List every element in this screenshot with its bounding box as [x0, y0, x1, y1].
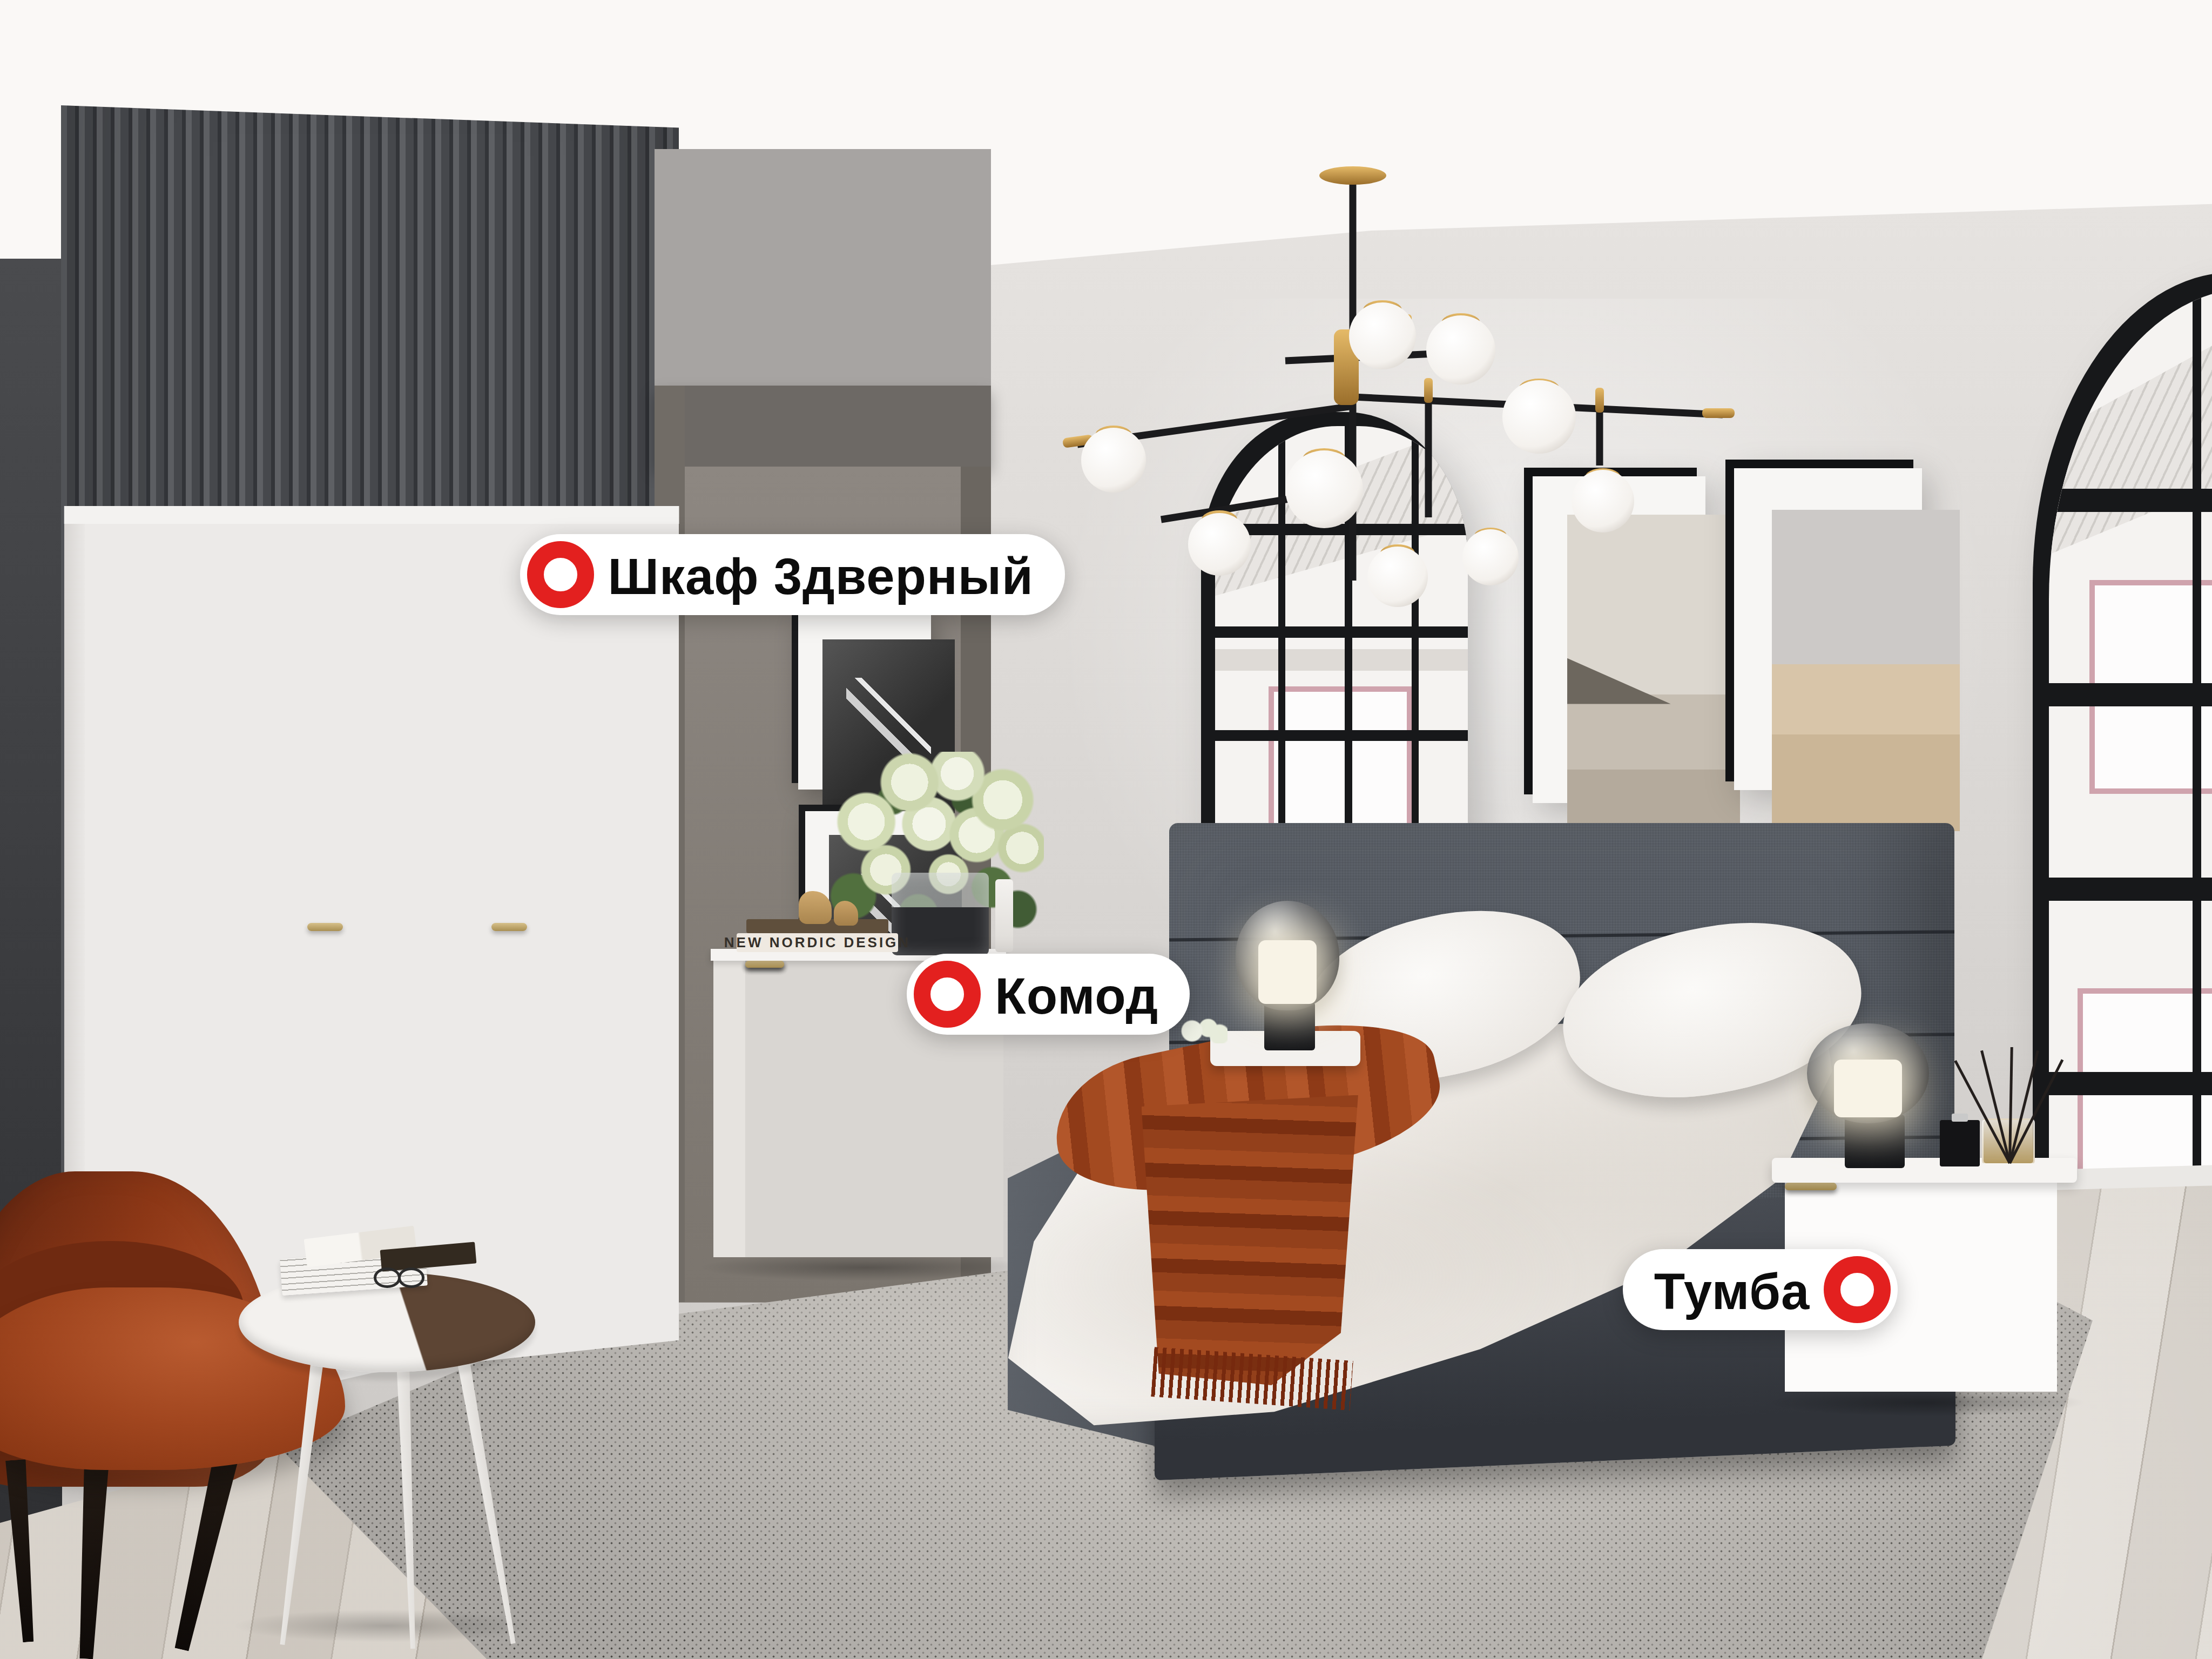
niche-pelmet	[655, 386, 991, 466]
hotspot-marker-icon	[914, 961, 981, 1028]
frame-mat	[1734, 468, 1922, 790]
drawer-handle	[745, 961, 784, 968]
nightstand-lamp-glass-dome	[1807, 1023, 1928, 1123]
chest-side-panel	[713, 961, 745, 1257]
hotspot-marker-icon	[527, 541, 594, 608]
wardrobe-cornice	[62, 506, 682, 524]
bed-lamp-glass-dome	[1236, 901, 1340, 1010]
nightstand-lamp-bulb	[1834, 1060, 1902, 1117]
book-stack: NEW NORDIC DESIGN	[737, 919, 898, 952]
hotspot-label-nightstand[interactable]: Тумба	[1623, 1249, 1898, 1330]
table-floor-shadow	[232, 1609, 542, 1642]
book-spine: NEW NORDIC DESIGN	[737, 933, 898, 953]
hotspot-marker-icon	[1824, 1256, 1891, 1323]
hotspot-label-dresser[interactable]: Комод	[907, 954, 1190, 1035]
eyeglasses	[374, 1267, 424, 1283]
bedroom-scene: NEW NORDIC DESIGN	[0, 0, 2212, 1659]
candlestick	[995, 879, 1013, 952]
wall-frame-dunes	[1725, 460, 1913, 781]
window-muntins	[2049, 288, 2212, 1244]
dunes-art	[1772, 510, 1960, 832]
wall-frame-seascape	[1524, 468, 1696, 794]
seascape-art	[1567, 515, 1739, 841]
wardrobe-handle-right	[491, 923, 527, 931]
flower-sprig	[1177, 1019, 1228, 1043]
hotspot-label-text: Шкаф 3дверный	[594, 543, 1050, 606]
hotspot-label-text: Тумба	[1638, 1258, 1824, 1321]
right-window-view	[2049, 288, 2212, 1244]
wardrobe-handle-left	[307, 923, 343, 931]
bed-lamp-bulb	[1258, 940, 1317, 1004]
nightstand-floor-shadow	[1765, 1388, 2086, 1417]
hotspot-label-wardrobe[interactable]: Шкаф 3дверный	[520, 534, 1065, 615]
throw-blanket-hang	[1142, 1095, 1358, 1386]
hotspot-label-text: Комод	[981, 963, 1175, 1026]
drawer-handle	[1785, 1183, 1837, 1190]
book-spine-text: NEW NORDIC DESIGN	[724, 934, 911, 951]
frame-mat	[1533, 476, 1705, 803]
niche-upper-wall	[655, 149, 991, 386]
perfume-bottle	[1940, 1120, 1980, 1166]
reed-diffuser	[1982, 1118, 2035, 1165]
